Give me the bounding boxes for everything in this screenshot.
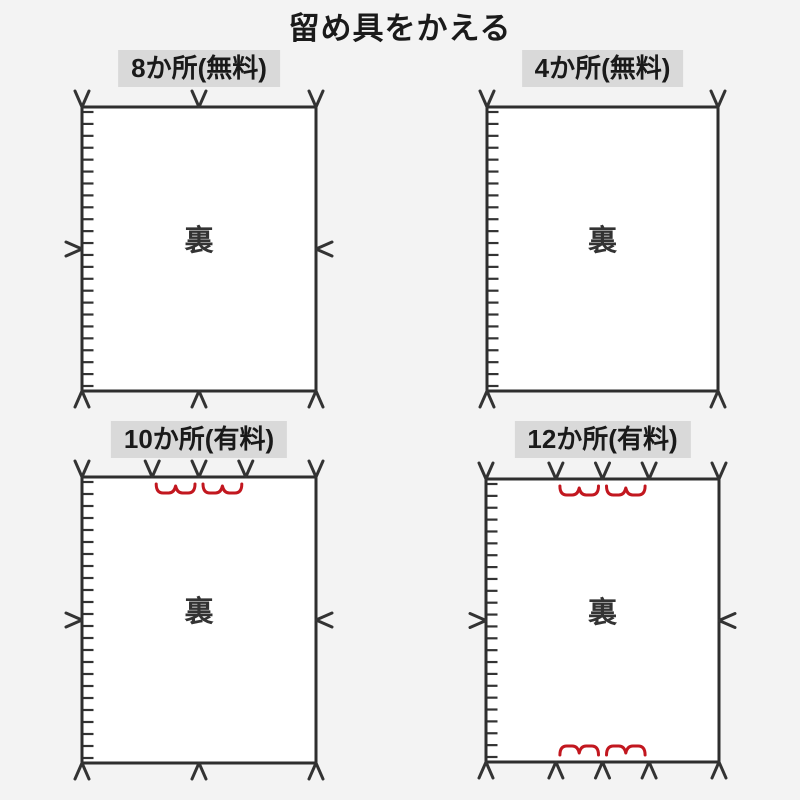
- clip-mark-top-left: [75, 91, 89, 107]
- back-label: 裏: [82, 592, 316, 633]
- clip-mark-top-left: [480, 91, 494, 107]
- clip-mark-right-middle: [316, 613, 332, 627]
- page: 留め具をかえる 8か所(無料)裏4か所(無料)裏25cm25cm10か所(有料)…: [0, 0, 800, 800]
- clip-mark-left-middle: [66, 613, 82, 627]
- clip-mark-top-center: [192, 461, 206, 477]
- panel-header: 10か所(有料): [111, 421, 287, 458]
- clip-mark-top-left: [479, 463, 493, 479]
- clip-mark-top-center: [596, 463, 610, 479]
- back-label: 裏: [487, 221, 718, 262]
- clip-mark-bottom-right: [309, 763, 323, 779]
- clip-mark-bottom-center-left: [549, 762, 563, 778]
- clip-mark-top-right: [309, 461, 323, 477]
- clip-mark-top-center: [192, 91, 206, 107]
- panel-header: 12か所(有料): [514, 421, 690, 458]
- clip-mark-right-middle: [316, 242, 332, 256]
- panel-header: 8か所(無料): [118, 50, 280, 87]
- clip-mark-bottom-right: [309, 391, 323, 407]
- clip-mark-left-middle: [470, 614, 486, 628]
- clip-mark-right-middle: [719, 614, 735, 628]
- clip-mark-top-center-right: [239, 461, 253, 477]
- panel-8-places-free: 8か所(無料)裏: [62, 87, 336, 411]
- clip-mark-bottom-center: [596, 762, 610, 778]
- clip-mark-top-center-right: [642, 463, 656, 479]
- clip-mark-bottom-left: [75, 391, 89, 407]
- clip-mark-top-right: [309, 91, 323, 107]
- clip-mark-bottom-left: [480, 391, 494, 407]
- back-label: 裏: [486, 593, 719, 634]
- panels-grid: 8か所(無料)裏4か所(無料)裏25cm25cm10か所(有料)裏25cm25c…: [0, 0, 800, 800]
- clip-mark-bottom-left: [479, 762, 493, 778]
- clip-mark-bottom-center: [192, 763, 206, 779]
- back-label: 裏: [82, 221, 316, 262]
- clip-mark-bottom-center: [192, 391, 206, 407]
- clip-mark-top-right: [711, 91, 725, 107]
- clip-mark-bottom-right: [712, 762, 726, 778]
- clip-mark-left-middle: [66, 242, 82, 256]
- clip-mark-top-center-left: [145, 461, 159, 477]
- clip-mark-top-right: [712, 463, 726, 479]
- clip-mark-bottom-right: [711, 391, 725, 407]
- panel-12-places-paid: 25cm25cm25cm25cm12か所(有料)裏: [466, 459, 739, 782]
- panel-header: 4か所(無料): [522, 50, 684, 87]
- clip-mark-top-center-left: [549, 463, 563, 479]
- clip-mark-top-left: [75, 461, 89, 477]
- panel-10-places-paid: 25cm25cm10か所(有料)裏: [62, 457, 336, 783]
- panel-4-places-free: 4か所(無料)裏: [467, 87, 738, 411]
- clip-mark-bottom-center-right: [642, 762, 656, 778]
- clip-mark-bottom-left: [75, 763, 89, 779]
